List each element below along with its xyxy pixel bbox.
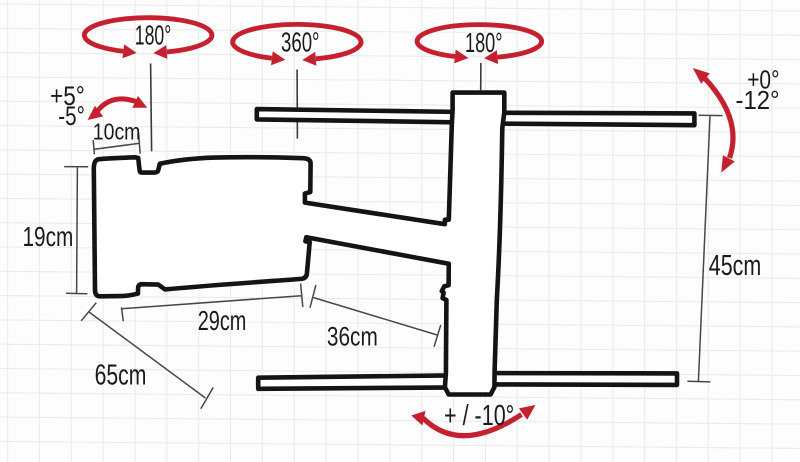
svg-text:180°: 180° [135, 19, 172, 50]
svg-text:-5°: -5° [58, 101, 85, 131]
svg-text:65cm: 65cm [95, 360, 147, 392]
svg-text:-12°: -12° [736, 87, 780, 115]
svg-text:10cm: 10cm [93, 118, 141, 144]
svg-text:19cm: 19cm [23, 221, 74, 252]
svg-text:29cm: 29cm [198, 305, 247, 336]
svg-text:180°: 180° [465, 27, 503, 58]
svg-text:45cm: 45cm [709, 250, 762, 282]
svg-text:360°: 360° [281, 27, 320, 58]
svg-text:+ / -10°: + / -10° [444, 400, 514, 432]
svg-text:36cm: 36cm [327, 321, 378, 351]
